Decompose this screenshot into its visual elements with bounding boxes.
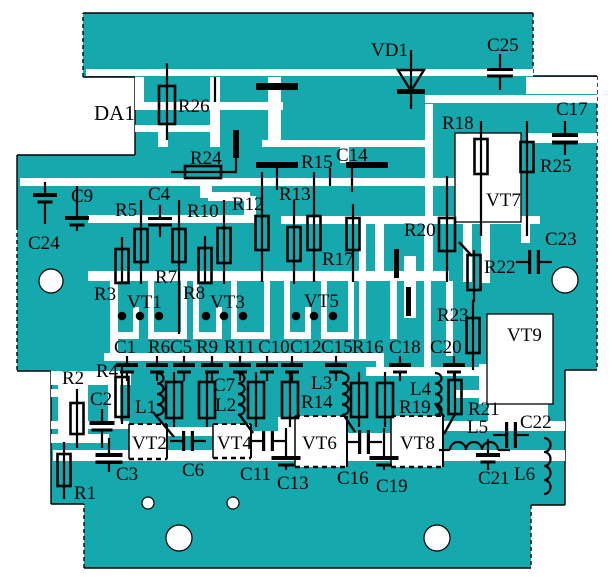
svg-text:R2: R2 <box>62 368 84 389</box>
svg-text:VT6: VT6 <box>302 433 337 454</box>
svg-text:R25: R25 <box>540 156 572 177</box>
svg-text:C14: C14 <box>336 145 368 166</box>
svg-text:R4: R4 <box>96 361 119 382</box>
svg-text:C15: C15 <box>321 337 353 358</box>
svg-text:C5: C5 <box>170 337 192 358</box>
svg-text:R15: R15 <box>301 152 333 173</box>
svg-text:C10: C10 <box>258 337 290 358</box>
svg-text:R10: R10 <box>187 201 219 222</box>
svg-text:VT8: VT8 <box>400 433 435 454</box>
svg-text:C21: C21 <box>478 468 510 489</box>
svg-text:VT4: VT4 <box>217 433 252 454</box>
svg-text:R14: R14 <box>301 392 333 413</box>
svg-text:C16: C16 <box>337 468 369 489</box>
svg-text:DA1: DA1 <box>94 101 135 125</box>
svg-text:C11: C11 <box>240 464 271 485</box>
svg-text:C25: C25 <box>487 35 519 56</box>
svg-text:R1: R1 <box>74 483 96 504</box>
svg-text:L2: L2 <box>215 395 236 416</box>
svg-text:C9: C9 <box>71 186 93 207</box>
svg-text:C23: C23 <box>545 229 577 250</box>
svg-text:C18: C18 <box>389 337 421 358</box>
svg-text:C7: C7 <box>213 375 235 396</box>
svg-text:C2: C2 <box>90 389 112 410</box>
svg-text:R9: R9 <box>196 337 218 358</box>
svg-text:C1: C1 <box>114 337 136 358</box>
svg-text:R6: R6 <box>148 337 170 358</box>
svg-text:R5: R5 <box>115 200 137 221</box>
svg-text:R3: R3 <box>94 284 116 305</box>
svg-text:C4: C4 <box>148 184 171 205</box>
svg-text:C6: C6 <box>182 460 204 481</box>
svg-text:R7: R7 <box>155 267 177 288</box>
svg-text:VD1: VD1 <box>371 40 408 61</box>
svg-text:R8: R8 <box>183 283 205 304</box>
svg-text:R13: R13 <box>279 184 311 205</box>
svg-text:R11: R11 <box>224 337 255 358</box>
svg-text:VT9: VT9 <box>507 325 542 346</box>
svg-text:C13: C13 <box>277 473 309 494</box>
svg-text:C20: C20 <box>430 337 462 358</box>
svg-text:L1: L1 <box>135 397 156 418</box>
svg-text:C19: C19 <box>376 476 408 497</box>
svg-text:R16: R16 <box>352 337 384 358</box>
svg-text:C17: C17 <box>556 99 588 120</box>
svg-text:C22: C22 <box>520 412 552 433</box>
svg-text:R20: R20 <box>404 220 436 241</box>
svg-text:VT1: VT1 <box>127 292 162 313</box>
svg-text:L6: L6 <box>514 464 535 485</box>
svg-text:C12: C12 <box>290 337 322 358</box>
svg-text:L5: L5 <box>467 417 488 438</box>
svg-text:R19: R19 <box>399 397 431 418</box>
svg-text:VT7: VT7 <box>486 190 521 211</box>
svg-text:L3: L3 <box>311 373 332 394</box>
svg-text:R22: R22 <box>484 257 516 278</box>
svg-text:VT3: VT3 <box>210 292 245 313</box>
svg-text:C3: C3 <box>116 464 138 485</box>
svg-text:R23: R23 <box>437 305 469 326</box>
svg-text:VT5: VT5 <box>304 291 339 312</box>
svg-text:R17: R17 <box>322 249 354 270</box>
svg-text:C24: C24 <box>28 233 60 254</box>
svg-text:VT2: VT2 <box>132 433 167 454</box>
svg-text:R26: R26 <box>178 96 210 117</box>
svg-text:R24: R24 <box>190 148 222 169</box>
svg-text:R18: R18 <box>442 113 474 134</box>
svg-text:R12: R12 <box>232 194 264 215</box>
